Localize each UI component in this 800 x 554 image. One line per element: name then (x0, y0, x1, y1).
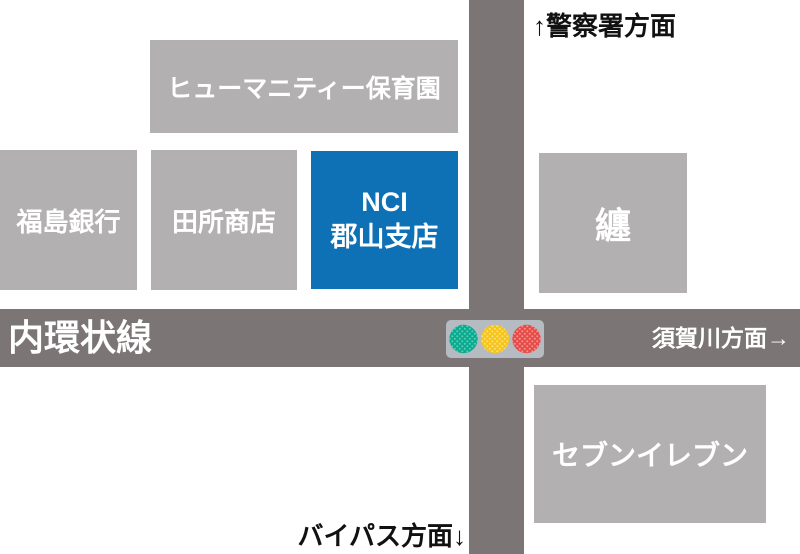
direction-north-label: ↑警察署方面 (533, 6, 676, 43)
building-fukushima-bank: 福島銀行 (0, 150, 137, 290)
building-matoi-label: 纏 (595, 197, 631, 249)
building-nci-label-line1: NCI (361, 185, 408, 220)
building-fukushima-bank-label: 福島銀行 (16, 202, 120, 239)
building-nursery-label: ヒューマニティー保育園 (167, 69, 441, 105)
building-tadokoro-shoten: 田所商店 (151, 150, 297, 290)
traffic-light-icon (446, 320, 544, 358)
building-nci-koriyama-branch: NCI 郡山支店 (311, 151, 458, 289)
building-seven-eleven: セブンイレブン (534, 385, 766, 523)
direction-east-label: 須賀川方面→ (652, 309, 790, 367)
road-vertical (469, 0, 524, 554)
building-matoi: 纏 (539, 153, 687, 293)
road-name-label: 内環状線 (8, 309, 152, 367)
building-tadokoro-shoten-label: 田所商店 (172, 202, 276, 239)
direction-south-label: バイパス方面↓ (298, 516, 466, 553)
road-horizontal: 内環状線 須賀川方面→ (0, 309, 800, 367)
access-map: 内環状線 須賀川方面→ ヒューマニティー保育園 福島銀行 田所商店 NCI 郡山… (0, 0, 800, 554)
building-seven-eleven-label: セブンイレブン (552, 434, 748, 474)
building-nci-label-line2: 郡山支店 (331, 220, 439, 255)
building-nursery: ヒューマニティー保育園 (150, 40, 458, 133)
